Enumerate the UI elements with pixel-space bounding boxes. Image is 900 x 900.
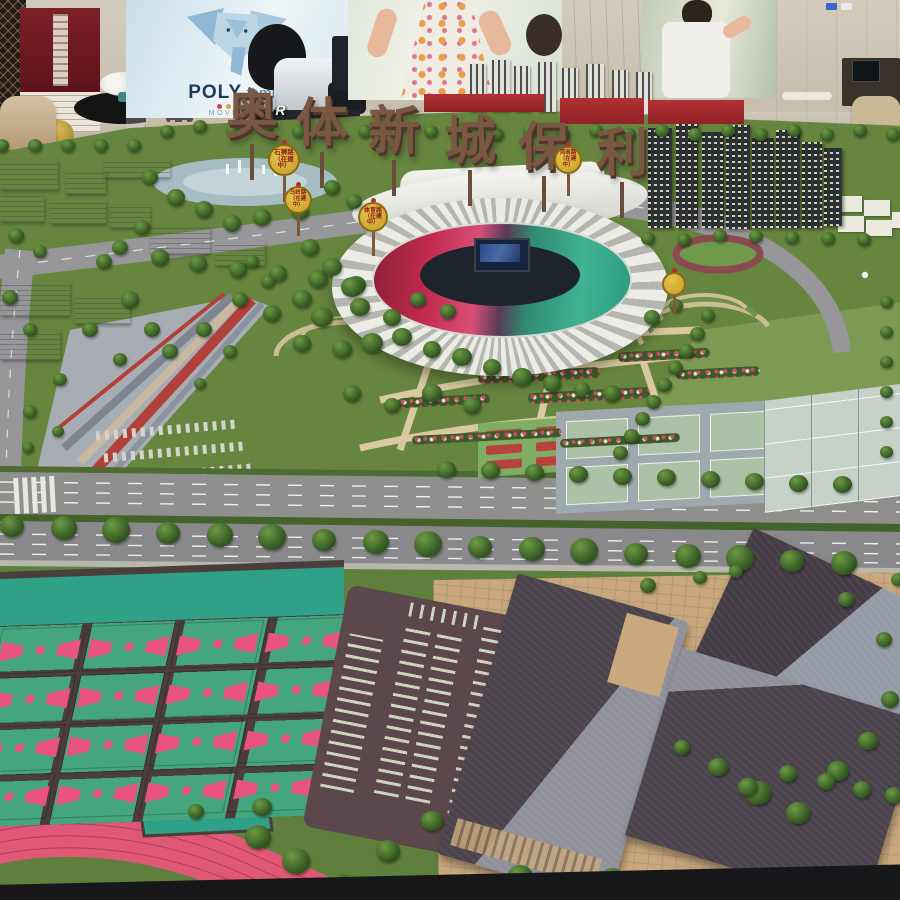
- tree: [641, 232, 655, 245]
- tree: [677, 233, 691, 246]
- court-key: [133, 685, 159, 706]
- court-key: [34, 737, 60, 758]
- tree: [624, 543, 648, 565]
- character-post: [620, 182, 624, 218]
- tree: [113, 353, 127, 366]
- tree: [574, 382, 590, 397]
- basketball-court-grid: [0, 614, 359, 828]
- tree: [383, 309, 401, 326]
- tree: [525, 464, 544, 481]
- highrise-tower: [726, 125, 750, 229]
- tree: [229, 261, 247, 278]
- tree: [452, 348, 472, 366]
- tree: [785, 231, 799, 244]
- tree: [332, 340, 352, 358]
- court-centre-circle: [202, 688, 213, 697]
- low-rise-building: [50, 200, 106, 224]
- court-centre-circle: [103, 740, 114, 749]
- tree: [880, 446, 893, 458]
- tree: [341, 277, 363, 297]
- highrise-tower: [824, 148, 842, 226]
- highrise-tower: [752, 138, 774, 228]
- tree: [779, 765, 797, 782]
- tree: [282, 848, 310, 874]
- court-key: [165, 684, 191, 705]
- tree: [885, 787, 900, 804]
- tree: [2, 290, 18, 305]
- court-key: [254, 681, 280, 702]
- court-key: [211, 731, 237, 752]
- tree: [194, 378, 206, 389]
- court-key: [143, 636, 169, 657]
- court-key: [55, 639, 81, 660]
- tree: [33, 245, 47, 258]
- basketball-court: [0, 774, 54, 821]
- tree: [481, 462, 500, 479]
- court-key: [155, 733, 181, 754]
- tennis-court-group: [556, 400, 778, 514]
- tree: [167, 189, 185, 206]
- model-title-character: 体: [296, 98, 348, 150]
- court-centre-circle: [24, 694, 35, 703]
- tree: [786, 802, 810, 824]
- tree: [886, 128, 900, 141]
- tree: [745, 473, 764, 490]
- tree: [207, 523, 233, 547]
- sign-road-status: （在建中）: [270, 157, 298, 171]
- tree: [162, 344, 178, 359]
- tree: [624, 429, 639, 443]
- tree: [421, 811, 443, 831]
- tree: [311, 307, 333, 327]
- tree: [833, 476, 852, 493]
- court-centre-circle: [212, 639, 223, 648]
- tree: [112, 240, 128, 255]
- tree: [392, 328, 412, 346]
- court-centre-circle: [191, 737, 202, 746]
- tree: [53, 373, 67, 386]
- tree: [876, 632, 892, 647]
- court-red-patch: [486, 443, 522, 455]
- stadium-video-board: [474, 238, 530, 272]
- model-title-character: 新: [368, 106, 420, 158]
- tree: [646, 395, 661, 409]
- tree: [22, 442, 34, 453]
- road-sign-tiyu: 体育路 （在建中）: [358, 198, 388, 256]
- tree: [701, 471, 720, 488]
- court-key: [232, 633, 258, 654]
- court-centre-circle: [301, 636, 312, 645]
- court-centre-circle: [14, 743, 25, 752]
- tree: [675, 544, 701, 568]
- court-key: [0, 690, 14, 711]
- tree: [312, 529, 336, 551]
- tree: [708, 758, 728, 776]
- tree: [674, 740, 690, 755]
- tree: [543, 375, 561, 392]
- low-rise-building: [0, 196, 44, 222]
- tree: [853, 781, 871, 798]
- road-sign-distant: [662, 268, 686, 314]
- tree: [96, 254, 112, 269]
- low-rise-building: [0, 160, 58, 190]
- low-rise-building: [66, 172, 106, 194]
- tree: [23, 405, 37, 418]
- tree: [880, 356, 893, 368]
- tree: [245, 255, 259, 268]
- road-sign-maling: 马岭路 （在建中）: [284, 182, 312, 236]
- multiuse-courts: [764, 383, 900, 513]
- tree: [322, 258, 342, 276]
- court-key: [56, 785, 82, 806]
- tree: [195, 201, 213, 218]
- court-key: [23, 786, 49, 807]
- court-key: [112, 783, 138, 804]
- sales-center-model-photo: POLY family MOVE THE POLY family VR: [0, 0, 900, 900]
- tree: [363, 530, 389, 554]
- tree: [603, 385, 621, 402]
- tree: [701, 309, 715, 322]
- court-centre-circle: [181, 786, 192, 795]
- tree: [142, 170, 158, 185]
- court-key: [44, 688, 70, 709]
- tree: [361, 333, 383, 353]
- basketball-court: [82, 624, 174, 671]
- basketball-court: [0, 627, 86, 674]
- tree: [721, 124, 735, 137]
- highrise-tower: [776, 130, 800, 228]
- tree: [232, 292, 248, 307]
- tree: [440, 304, 456, 319]
- tree: [52, 426, 64, 437]
- tree: [729, 565, 743, 578]
- tree: [160, 125, 174, 138]
- basketball-court: [161, 670, 253, 717]
- tree: [28, 139, 42, 152]
- tree: [468, 536, 492, 558]
- tree: [690, 327, 705, 341]
- court-key: [233, 779, 259, 800]
- tree: [82, 322, 98, 337]
- character-post: [392, 160, 396, 196]
- tree: [8, 228, 24, 243]
- lawn-sheep: [862, 272, 868, 278]
- tennis-court: [710, 410, 772, 451]
- court-centre-circle: [280, 734, 291, 743]
- character-post: [468, 170, 472, 206]
- character-post: [320, 152, 324, 188]
- tree: [880, 386, 893, 398]
- tree: [679, 344, 694, 358]
- tree: [789, 475, 808, 492]
- tree: [134, 220, 150, 235]
- highrise-tower: [702, 132, 724, 228]
- basketball-court: [61, 722, 153, 769]
- basketball-court: [140, 768, 232, 815]
- tree: [613, 468, 632, 485]
- tree: [61, 139, 75, 152]
- road-sign-hongshang: 鸿商路 （在建中）: [554, 142, 582, 196]
- tree: [127, 139, 141, 152]
- basketball-court: [171, 621, 263, 668]
- court-key: [264, 632, 290, 653]
- tree: [891, 573, 900, 586]
- tree: [384, 398, 400, 413]
- tree: [463, 397, 481, 414]
- court-key: [66, 736, 92, 757]
- court-centre-circle: [270, 783, 281, 792]
- tree: [350, 298, 370, 316]
- tree: [144, 322, 160, 337]
- court-centre-circle: [124, 642, 135, 651]
- court-key: [243, 730, 269, 751]
- court-key: [0, 739, 4, 760]
- tree: [188, 804, 204, 819]
- tree: [252, 798, 272, 816]
- low-rise-building: [104, 158, 170, 178]
- tree: [193, 120, 207, 133]
- red-backdrop-wall: [424, 94, 544, 112]
- court-key: [222, 682, 248, 703]
- tree: [749, 230, 763, 243]
- tree: [156, 522, 180, 544]
- tree: [410, 292, 426, 307]
- tree: [519, 537, 545, 561]
- model-title-character: 利: [596, 128, 648, 180]
- tree: [293, 335, 311, 352]
- tree: [644, 310, 660, 325]
- tree: [437, 461, 456, 478]
- clubhouse-courtyard: [607, 613, 679, 697]
- tree: [292, 290, 312, 308]
- tree: [261, 275, 275, 288]
- villa-building: [864, 200, 890, 216]
- red-backdrop-wall: [560, 98, 644, 124]
- court-centre-circle: [92, 789, 103, 798]
- tree: [821, 232, 835, 245]
- tree: [196, 322, 212, 337]
- court-centre-circle: [291, 685, 302, 694]
- tree: [754, 128, 768, 141]
- tree: [422, 384, 442, 402]
- court-key: [87, 638, 113, 659]
- tree: [738, 778, 758, 796]
- tree: [245, 825, 271, 849]
- court-key: [144, 782, 170, 803]
- tree: [423, 341, 441, 358]
- tree: [713, 229, 727, 242]
- tree: [94, 139, 108, 152]
- villa-building: [892, 212, 900, 228]
- tree: [820, 128, 834, 141]
- sign-road-status: （在建中）: [556, 157, 580, 169]
- tree: [151, 249, 169, 266]
- video-board-screen: [480, 244, 520, 262]
- tree: [881, 691, 899, 708]
- tree: [223, 215, 241, 232]
- tree: [424, 125, 438, 138]
- tree: [657, 469, 676, 486]
- tree: [880, 296, 893, 308]
- tree: [831, 551, 857, 575]
- tree: [343, 385, 361, 402]
- model-title-character: 奥: [226, 90, 278, 142]
- tree: [569, 466, 588, 483]
- court-key: [201, 780, 227, 801]
- tree: [376, 840, 400, 862]
- basketball-court: [0, 676, 75, 723]
- tree: [838, 592, 854, 607]
- court-key: [0, 641, 25, 662]
- model-title-character: 城: [444, 116, 496, 168]
- tree: [0, 515, 24, 537]
- highrise-tower: [648, 128, 672, 228]
- character-post: [542, 176, 546, 212]
- tree: [857, 233, 871, 246]
- tree: [657, 378, 672, 392]
- court-key: [176, 635, 202, 656]
- tree: [223, 345, 237, 358]
- basketball-court: [0, 725, 65, 772]
- sign-road-status: （在建中）: [286, 197, 310, 209]
- court-key: [77, 687, 103, 708]
- basketball-court: [72, 673, 164, 720]
- tree: [668, 361, 683, 375]
- sign-road-status: （在建中）: [360, 214, 386, 227]
- court-centre-circle: [35, 645, 46, 654]
- tree: [613, 446, 628, 460]
- tree: [853, 124, 867, 137]
- court-centre-circle: [3, 792, 14, 801]
- tree: [512, 368, 532, 386]
- highrise-tower: [802, 142, 822, 228]
- court-centre-circle: [113, 691, 124, 700]
- tree: [693, 571, 707, 584]
- tree: [787, 124, 801, 137]
- tree: [51, 516, 77, 540]
- villa-building: [866, 220, 892, 236]
- tree: [121, 291, 139, 308]
- tree: [263, 305, 281, 322]
- tree: [640, 578, 656, 593]
- basketball-court: [51, 771, 143, 818]
- tree: [23, 323, 37, 336]
- tree: [880, 416, 893, 428]
- tree: [655, 124, 669, 137]
- court-key: [123, 734, 149, 755]
- tree: [780, 550, 804, 572]
- tree: [324, 180, 340, 195]
- tree: [880, 326, 893, 338]
- red-backdrop-wall: [648, 100, 744, 124]
- tree: [688, 128, 702, 141]
- tree: [635, 412, 650, 426]
- tree: [817, 773, 835, 790]
- tree: [483, 359, 501, 376]
- tree: [253, 209, 271, 226]
- character-post: [250, 144, 254, 180]
- basketball-court: [150, 719, 242, 766]
- tree: [858, 732, 878, 750]
- tree: [189, 255, 207, 272]
- tree: [301, 239, 319, 256]
